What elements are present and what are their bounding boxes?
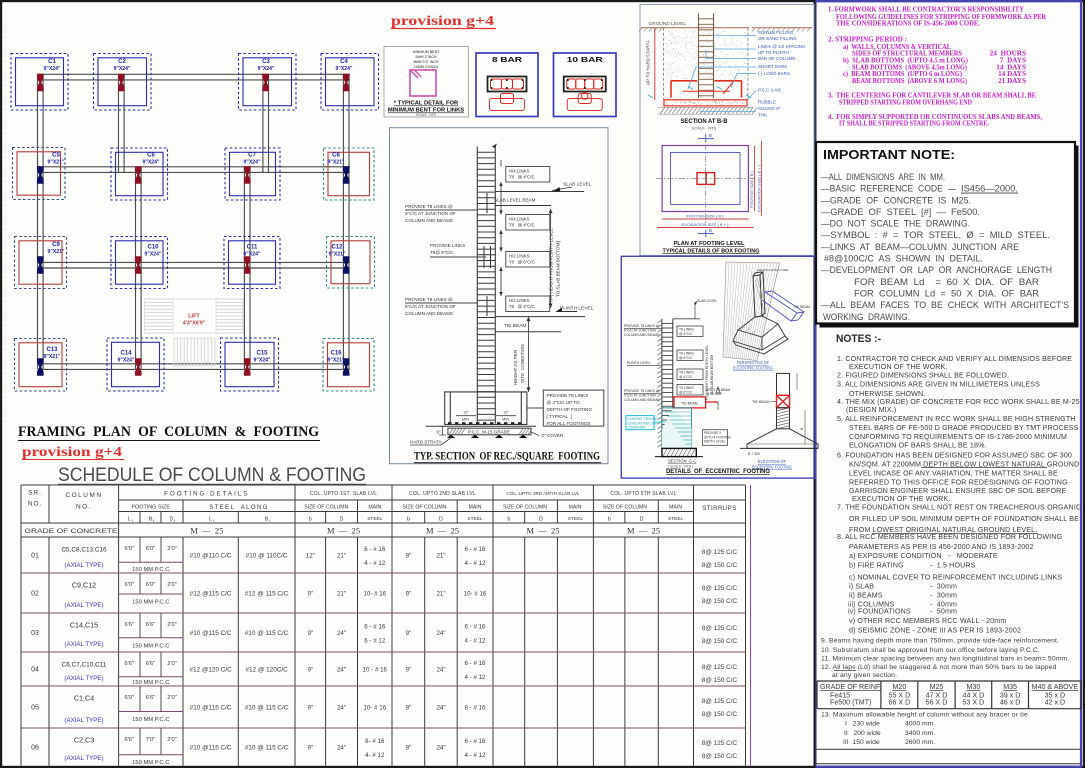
svg-text:FRAMING PLAN OF COLUMN & FOOTI: FRAMING PLAN OF COLUMN & FOOTING <box>18 424 319 440</box>
svg-text:DEPTH LEVEL: DEPTH LEVEL <box>704 440 726 444</box>
svg-text:66 X D: 66 X D <box>889 699 911 707</box>
svg-text:4'3"X6'9": 4'3"X6'9" <box>183 321 206 327</box>
svg-text:SIZE OF COLUMN: SIZE OF COLUMN <box>304 505 348 511</box>
svg-text:11. Minimum clear spacing betw: 11. Minimum clear spacing between any tw… <box>821 656 1069 663</box>
svg-text:9": 9" <box>307 591 313 598</box>
svg-text:ii) BEAMS: ii) BEAMS <box>849 592 883 600</box>
svg-text:M35: M35 <box>1003 683 1017 691</box>
svg-text:COLUMN: COLUMN <box>65 492 102 499</box>
svg-text:GARRISON ENGINEER SHALL ENSURE: GARRISON ENGINEER SHALL ENSURE SBC OF SO… <box>849 487 1066 495</box>
svg-text:THE CONSIDERATIONS OF IS-456-2: THE CONSIDERATIONS OF IS-456-2000 CODE. <box>836 20 980 28</box>
svg-text:5"C/C AT JUNCTION: 5"C/C AT JUNCTION <box>624 394 656 398</box>
svg-text:f: f <box>213 519 214 523</box>
svg-text:@ 4"C/C: @ 4"C/C <box>679 332 693 336</box>
svg-text:9": 9" <box>406 630 412 637</box>
svg-text:c) NOMINAL COVER TO REINFORCEM: c) NOMINAL COVER TO REINFORCEMENT INCLUD… <box>849 574 1062 582</box>
svg-text:6′0": 6′0" <box>146 582 156 588</box>
svg-text:FOR ALL FOOTINGS: FOR ALL FOOTINGS <box>547 421 591 426</box>
svg-text:2′0": 2′0" <box>167 695 177 701</box>
svg-text:COL. UPTO 3RD /4RTH SLAB LVL: COL. UPTO 3RD /4RTH SLAB LVL <box>506 491 580 496</box>
svg-text:—BASIC REFERENCE CODE —: —BASIC REFERENCE CODE — <box>821 184 961 194</box>
svg-text:T8 @ 6"C/C: T8 @ 6"C/C <box>509 260 535 265</box>
svg-text:STEEL BARS OF FE-500 D GRADE P: STEEL BARS OF FE-500 D GRADE PRODUCED BY… <box>849 424 1079 432</box>
svg-text:4 - # 12: 4 - # 12 <box>465 638 487 645</box>
svg-text:IS456—2000.: IS456—2000. <box>961 184 1018 194</box>
svg-text:SHORT BARS: SHORT BARS <box>758 64 787 69</box>
svg-text:PERSPECTIVE OF: PERSPECTIVE OF <box>737 360 769 365</box>
svg-text:M — 25: M — 25 <box>526 526 559 536</box>
svg-text:@ 4"C/C: @ 4"C/C <box>679 375 693 379</box>
svg-text:STIRRUPS: STIRRUPS <box>702 505 737 512</box>
svg-text:#12 @ 120C/C: #12 @ 120C/C <box>245 667 288 674</box>
svg-text:10 - # 16: 10 - # 16 <box>363 667 388 674</box>
svg-text:NOTES :-: NOTES :- <box>836 333 881 345</box>
svg-text:SCHEDULE OF COLUMN & FOOTING: SCHEDULE OF COLUMN & FOOTING <box>58 465 366 486</box>
svg-text:9": 9" <box>406 553 412 560</box>
svg-text:PARAMETERS AS PER IS 456-2000: PARAMETERS AS PER IS 456-2000 AND IS 189… <box>849 543 1034 551</box>
svg-text:BAR OF COLUMN: BAR OF COLUMN <box>758 56 796 61</box>
svg-text:SCALE : NTS: SCALE : NTS <box>416 113 436 117</box>
svg-text:C3: C3 <box>262 59 270 65</box>
svg-text:6"C/C AT JUNCTION OF: 6"C/C AT JUNCTION OF <box>405 211 456 216</box>
svg-text:b: b <box>309 517 312 523</box>
svg-text:8@ 150 C/C: 8@ 150 C/C <box>702 638 738 645</box>
svg-text:TYP. SECTION OF REC./SQUARE: TYP. SECTION OF REC./SQUARE FOOTING <box>414 449 600 463</box>
svg-text:THK.: THK. <box>758 113 768 118</box>
svg-text:FOOTING SIZE ( B ): FOOTING SIZE ( B ) <box>749 170 754 208</box>
svg-text:6′9": 6′9" <box>125 695 135 701</box>
svg-text:10MM 4"INCH): 10MM 4"INCH) <box>414 65 438 69</box>
svg-text:SECTION C-C: SECTION C-C <box>668 459 696 464</box>
svg-text:(DESIGN MIX.): (DESIGN MIX.) <box>846 406 896 414</box>
svg-text:—GRADE OF CONCRETE IS M25.: —GRADE OF CONCRETE IS M25. <box>821 195 971 205</box>
svg-text:C9: C9 <box>52 242 60 248</box>
svg-text:#10 @115 C/C: #10 @115 C/C <box>190 705 232 712</box>
svg-text:12": 12" <box>503 411 509 415</box>
svg-text:D: D <box>640 517 644 523</box>
svg-text:EXCAVATION SIZE ( B + ): EXCAVATION SIZE ( B + ) <box>757 164 762 212</box>
svg-text:150 MM P.C.C: 150 MM P.C.C <box>132 717 169 723</box>
svg-text:C5: C5 <box>52 153 60 159</box>
svg-text:PROVIDE T8 LINKS @: PROVIDE T8 LINKS @ <box>624 324 660 328</box>
svg-text:SLAB LEVEL: SLAB LEVEL <box>563 182 592 188</box>
svg-text:FOOTING DETAILS: FOOTING DETAILS <box>164 491 249 498</box>
svg-text:EXCAVATION SIZE ( B + ): EXCAVATION SIZE ( B + ) <box>681 222 729 227</box>
svg-text:MAIN: MAIN <box>669 505 682 511</box>
svg-text:iv) FOUNDATIONS: iv) FOUNDATIONS <box>848 608 911 616</box>
svg-text:TIE BEAM: TIE BEAM <box>681 402 698 406</box>
svg-text:STEEL: STEEL <box>568 516 584 522</box>
svg-text:9": 9" <box>406 705 412 712</box>
svg-text:L: L <box>209 517 212 523</box>
svg-text:B + 300: B + 300 <box>748 452 760 456</box>
svg-text:GRADE OF CONCRETE: GRADE OF CONCRETE <box>25 528 118 535</box>
svg-text:8@ 125 C/C: 8@ 125 C/C <box>702 549 738 556</box>
svg-text:f: f <box>269 519 270 523</box>
svg-text:C1: C1 <box>48 59 56 65</box>
svg-text:6 - # 16: 6 - # 16 <box>465 624 487 631</box>
svg-text:LINKS @ 1/2 SPACING: LINKS @ 1/2 SPACING <box>758 44 806 49</box>
svg-text:2600 mm.: 2600 mm. <box>905 739 935 746</box>
svg-text:—GRADE OF STEEL [#] — Fe5: —GRADE OF STEEL [#] — Fe500. <box>821 207 980 217</box>
svg-text:7′0": 7′0" <box>146 737 156 743</box>
svg-text:4 - # 12: 4 - # 12 <box>364 560 386 567</box>
svg-text:GRADE OF REINF.: GRADE OF REINF. <box>820 683 882 691</box>
svg-text:EXECUTION OF THE WORK.: EXECUTION OF THE WORK. <box>849 363 948 371</box>
svg-text:[ TYPICAL ]: [ TYPICAL ] <box>547 414 572 419</box>
svg-text:6. FOUNDATION HAS BEEN DESIGNE: 6. FOUNDATION HAS BEEN DESIGNED FOR ASSU… <box>837 452 1072 460</box>
svg-text:MAIN: MAIN <box>569 505 582 511</box>
svg-text:150 MM P.C.C: 150 MM P.C.C <box>132 567 169 573</box>
svg-text:CEILING STRUCTURE: CEILING STRUCTURE <box>757 268 788 272</box>
svg-text:f: f <box>153 519 154 523</box>
svg-text:C10: C10 <box>147 245 159 251</box>
svg-text:D: D <box>340 517 344 523</box>
svg-text:H/4 LINKS: H/4 LINKS <box>509 169 530 174</box>
svg-text:9"X24": 9"X24" <box>243 160 261 166</box>
svg-text:M20: M20 <box>892 683 906 691</box>
svg-text:#10 @115 C/C: #10 @115 C/C <box>190 630 232 637</box>
svg-text:21": 21" <box>337 591 346 598</box>
svg-text:H/4 LINKS: H/4 LINKS <box>509 217 530 222</box>
svg-text:24": 24" <box>436 744 445 751</box>
svg-text:SLAB LEVEL: SLAB LEVEL <box>697 299 717 303</box>
svg-text:9"X21": 9"X21" <box>327 160 345 166</box>
svg-text:LEVEL INCASE OF ANY VARIATION,: LEVEL INCASE OF ANY VARIATION, THE MATTE… <box>849 469 1058 477</box>
svg-text:9"X21": 9"X21" <box>328 252 346 258</box>
svg-text:C12: C12 <box>331 245 343 251</box>
svg-text:#10 @ 115 C/C: #10 @ 115 C/C <box>245 744 289 751</box>
svg-text:9"X24": 9"X24" <box>142 160 160 166</box>
svg-text:8@ 125 C/C: 8@ 125 C/C <box>702 625 738 632</box>
svg-text:6 - # 16: 6 - # 16 <box>364 546 386 553</box>
svg-text:C1,C4: C1,C4 <box>74 694 94 703</box>
svg-text:5MM 3"INCH: 5MM 3"INCH <box>415 55 436 59</box>
svg-text:24": 24" <box>436 667 445 674</box>
svg-text:PROVIDE T8 LINKS @: PROVIDE T8 LINKS @ <box>405 204 453 209</box>
svg-text:WORKING DRAWING.: WORKING DRAWING. <box>823 312 910 322</box>
svg-text:KN/SQM. AT 2200MM DEPTH BELOW: KN/SQM. AT 2200MM DEPTH BELOW LOWEST NAT… <box>849 460 1079 468</box>
svg-text:#10 @110 C/C: #10 @110 C/C <box>190 553 232 560</box>
svg-text:- 1.5 HOURS: - 1.5 HOURS <box>930 562 976 570</box>
svg-text:10- # 16: 10- # 16 <box>464 591 487 598</box>
svg-text:24": 24" <box>337 667 346 674</box>
svg-text:STEEL: STEEL <box>668 516 684 522</box>
svg-text:6′6": 6′6" <box>125 737 135 743</box>
svg-text:f: f <box>132 519 133 523</box>
svg-text:UP TO PLINTH: UP TO PLINTH <box>758 50 789 55</box>
svg-text:STRIPPED STARTING FROM OVERHAN: STRIPPED STARTING FROM OVERHANG END <box>839 98 972 106</box>
svg-text:MAIN: MAIN <box>368 505 381 511</box>
svg-text:M40 & ABOVE: M40 & ABOVE <box>1032 683 1079 691</box>
svg-text:a) EXPOSURE CONDITION - MO: a) EXPOSURE CONDITION - MODERATE <box>849 552 998 560</box>
svg-text:3. ALL DIMENSIONS ARE GIVEN IN: 3. ALL DIMENSIONS ARE GIVEN IN MILLIMETE… <box>837 381 1040 389</box>
svg-text:provision g+4: provision g+4 <box>22 444 122 459</box>
svg-text:SIZE OF COLUMN: SIZE OF COLUMN <box>503 505 547 511</box>
svg-text:—LINKS AT BEAM—COLUMN JUNCT: —LINKS AT BEAM—COLUMN JUNCTION ARE <box>821 242 1019 252</box>
svg-text:24": 24" <box>337 705 346 712</box>
svg-text:T8 LINKS: T8 LINKS <box>679 386 694 390</box>
svg-text:T8 @ 4"C/C: T8 @ 4"C/C <box>509 223 535 228</box>
svg-text:6 - # 16: 6 - # 16 <box>465 660 487 667</box>
svg-text:@ 6"C/C: @ 6"C/C <box>679 391 693 395</box>
svg-text:2′0": 2′0" <box>167 546 177 552</box>
svg-text:* TYPICAL DETAIL FOR: * TYPICAL DETAIL FOR <box>394 101 459 107</box>
svg-text:9": 9" <box>307 705 313 712</box>
svg-text:PLINTH LEVEL: PLINTH LEVEL <box>627 361 651 365</box>
svg-text:SIZE OF COLUMN: SIZE OF COLUMN <box>402 505 446 511</box>
svg-text:COLUMN AND BEAMS: COLUMN AND BEAMS <box>405 218 453 223</box>
svg-text:SLAB LEVEL BEAM: SLAB LEVEL BEAM <box>494 198 536 203</box>
svg-text:8. ALL RCC MEMBERS HAVE BEEN D: 8. ALL RCC MEMBERS HAVE BEEN DESIGNED FO… <box>837 533 1062 541</box>
svg-text:9"X24": 9"X24" <box>257 66 275 72</box>
svg-text:C7: C7 <box>248 153 256 159</box>
svg-text:LIFT: LIFT <box>188 314 200 320</box>
svg-text:b: b <box>507 517 510 523</box>
svg-text:M30: M30 <box>966 683 980 691</box>
svg-text:4. THE MIX (GRADE) OF CONCRETE: 4. THE MIX (GRADE) OF CONCRETE FOR RCC W… <box>837 398 1080 406</box>
svg-text:@ T8 GAP: @ T8 GAP <box>706 392 723 396</box>
svg-text:TIE BEAM: TIE BEAM <box>752 400 770 404</box>
svg-text:PROVIDE T8 LINKS @: PROVIDE T8 LINKS @ <box>624 389 660 393</box>
svg-text:RUBBLE: RUBBLE <box>758 100 776 105</box>
svg-text:H=[ HEIGHT FROM PLINTH LEVEL: H=[ HEIGHT FROM PLINTH LEVEL <box>549 228 554 302</box>
svg-text:4 - # 12: 4 - # 12 <box>465 674 487 681</box>
svg-text:C6: C6 <box>147 153 155 159</box>
svg-text:2′0": 2′0" <box>167 737 177 743</box>
svg-text:9"X24": 9"X24" <box>253 358 271 364</box>
svg-text:24": 24" <box>436 705 445 712</box>
svg-text:8MM 3.5" INCH: 8MM 3.5" INCH <box>413 60 438 64</box>
svg-text:C9,C12: C9,C12 <box>72 581 96 590</box>
svg-text:C8: C8 <box>332 153 340 159</box>
svg-text:150 MM P.C.C: 150 MM P.C.C <box>132 643 169 649</box>
svg-text:9": 9" <box>406 591 412 598</box>
svg-text:10- # 16: 10- # 16 <box>363 705 386 712</box>
svg-text:06: 06 <box>31 744 39 751</box>
svg-text:d) SEISMIC ZONE - ZONE III AS: d) SEISMIC ZONE - ZONE III AS PER IS 189… <box>849 627 1021 635</box>
svg-text:1. CONTRACTOR TO CHECK AND VER: 1. CONTRACTOR TO CHECK AND VERIFY ALL DI… <box>837 355 1072 363</box>
svg-text:42 x D: 42 x D <box>1045 699 1066 707</box>
svg-text:TYPICAL DETAILS OF BOX FOOTING: TYPICAL DETAILS OF BOX FOOTING <box>663 248 760 254</box>
svg-text:9"X21": 9"X21" <box>47 160 65 166</box>
svg-text:21 DAYS: 21 DAYS <box>998 77 1026 85</box>
svg-text:#10 @ 115 C/C: #10 @ 115 C/C <box>245 705 289 712</box>
svg-text:b: b <box>608 517 611 523</box>
svg-text:#8@100C/C AS SHOWN IN DETA: #8@100C/C AS SHOWN IN DETAIL. <box>824 254 983 264</box>
svg-text:6 - # 16: 6 - # 16 <box>364 624 386 631</box>
svg-text:4 - # 12: 4 - # 12 <box>465 752 487 759</box>
svg-text:150 MM P.C.C: 150 MM P.C.C <box>132 760 169 766</box>
svg-text:BEAM BOTTOMS (ABOVE 6 M LONG): BEAM BOTTOMS (ABOVE 6 M LONG) <box>852 77 968 85</box>
svg-text:PROVIDE T8 LINKS @: PROVIDE T8 LINKS @ <box>405 297 453 302</box>
svg-text:10. Substratum shall be approv: 10. Substratum shall be approved from ou… <box>821 647 1040 654</box>
svg-text:L: L <box>128 517 131 523</box>
svg-text:(AXIAL TYPE): (AXIAL TYPE) <box>64 641 103 648</box>
svg-text:C5,C8,C13,C16: C5,C8,C13,C16 <box>61 547 107 554</box>
svg-text:COL. UPTO 2ND SLAB LVL: COL. UPTO 2ND SLAB LVL <box>409 491 476 497</box>
svg-text:9"X21": 9"X21" <box>43 354 61 360</box>
svg-text:9": 9" <box>307 630 313 637</box>
svg-text:04: 04 <box>31 667 39 674</box>
svg-text:SECTION AT B-B: SECTION AT B-B <box>681 118 728 125</box>
svg-text:—DO NOT SCALE THE DRAWING.: —DO NOT SCALE THE DRAWING. <box>821 219 970 229</box>
svg-text:C2,C3: C2,C3 <box>74 736 94 745</box>
svg-text:6′6": 6′6" <box>125 661 135 667</box>
svg-text:8@ 125 C/C: 8@ 125 C/C <box>702 740 738 747</box>
svg-text:f: f <box>174 519 175 523</box>
svg-text:9"X24": 9"X24" <box>43 66 61 72</box>
svg-text:6 - # 12: 6 - # 12 <box>364 638 386 645</box>
svg-text:SOLING 9": SOLING 9" <box>758 106 781 111</box>
svg-text:9": 9" <box>307 667 313 674</box>
svg-text:D: D <box>170 517 174 523</box>
svg-text:M — 25: M — 25 <box>190 526 223 536</box>
svg-text:—ALL BEAM FACES TO BE CHE: —ALL BEAM FACES TO BE CHECK WITH ARCHITE… <box>821 300 1069 310</box>
svg-text:6′0": 6′0" <box>125 582 135 588</box>
svg-text:6"C/C AT JUNCTION: 6"C/C AT JUNCTION <box>624 329 656 333</box>
svg-text:I 230 wide: I 230 wide <box>845 721 880 728</box>
svg-text:T8 LINKS: T8 LINKS <box>679 371 694 375</box>
svg-text:C11: C11 <box>247 245 258 251</box>
svg-text:21": 21" <box>337 553 346 560</box>
svg-text:5"C/C AT JUNCTION OF: 5"C/C AT JUNCTION OF <box>405 304 456 309</box>
svg-text:#10 @ 115 C/C: #10 @ 115 C/C <box>245 630 289 637</box>
svg-text:v) OTHER RCC MEMBERS RCC WALL: v) OTHER RCC MEMBERS RCC WALL - 20mm <box>849 617 1006 625</box>
svg-text:SURLIM FILLING: SURLIM FILLING <box>758 30 794 35</box>
svg-text:13. Maximum allowable height o: 13. Maximum allowable height of column w… <box>821 711 1028 718</box>
svg-text:MAIN: MAIN <box>469 505 482 511</box>
svg-text:3400 mm.: 3400 mm. <box>905 730 935 737</box>
svg-text:9"X21": 9"X21" <box>327 358 345 364</box>
svg-text:#12 @115 C/C: #12 @115 C/C <box>190 591 232 598</box>
svg-text:provision g+4: provision g+4 <box>391 13 494 28</box>
svg-text:IMPORTANT NOTE:: IMPORTANT NOTE: <box>823 148 955 162</box>
svg-text:01: 01 <box>31 553 39 560</box>
svg-text:OR FILLED UP SOIL MINIMUM DEPT: OR FILLED UP SOIL MINIMUM DEPTH OF FOUND… <box>849 515 1079 523</box>
svg-text:T8 @ 4"C/C: T8 @ 4"C/C <box>509 304 535 309</box>
svg-text:8@ 150 C/C: 8@ 150 C/C <box>702 562 738 569</box>
svg-text:8@ 150 C/C: 8@ 150 C/C <box>702 753 738 760</box>
svg-text:10 BAR: 10 BAR <box>567 55 604 64</box>
svg-text:HEIGHT AS PER: HEIGHT AS PER <box>513 349 518 385</box>
svg-text:@ 6"C/C: @ 6"C/C <box>679 356 693 360</box>
svg-text:8@ 125 C/C: 8@ 125 C/C <box>702 698 738 705</box>
svg-text:UP TO HARD STARTA: UP TO HARD STARTA <box>646 40 651 85</box>
svg-text:24": 24" <box>337 744 346 751</box>
svg-text:2′0": 2′0" <box>167 582 177 588</box>
svg-text:P.C.C. M-15 GRADE: P.C.C. M-15 GRADE <box>468 430 510 435</box>
svg-text:8 - # 16: 8 - # 16 <box>465 705 487 712</box>
svg-text:TIE BEAM: TIE BEAM <box>504 323 526 329</box>
svg-text:24": 24" <box>436 630 445 637</box>
svg-text:12": 12" <box>463 411 469 415</box>
svg-text:T8 @ 4"C/C: T8 @ 4"C/C <box>509 175 535 180</box>
svg-text:C4: C4 <box>340 59 348 65</box>
svg-text:REFERRED TO THIS OFFICE FOR RE: REFERRED TO THIS OFFICE FOR REDESIGNING … <box>849 479 1068 487</box>
svg-text:EXECUTION OF THE WORK.: EXECUTION OF THE WORK. <box>852 495 951 503</box>
svg-text:OTHERWISE SHOWN.: OTHERWISE SHOWN. <box>849 390 925 398</box>
svg-text:2" COVER: 2" COVER <box>542 433 564 438</box>
svg-text:#12 @ 115 C/C: #12 @ 115 C/C <box>245 591 289 598</box>
svg-text:COL. UPTO 5TH SLAB LVL: COL. UPTO 5TH SLAB LVL <box>610 491 676 497</box>
svg-text:6 - # 16: 6 - # 16 <box>465 546 487 553</box>
svg-text:9"X24": 9"X24" <box>144 252 162 258</box>
svg-text:Fe500 (TMT): Fe500 (TMT) <box>830 699 871 707</box>
svg-text:M — 25: M — 25 <box>627 526 660 536</box>
svg-text:(AXIAL TYPE): (AXIAL TYPE) <box>64 717 103 724</box>
svg-text:#10 @ 110C/C: #10 @ 110C/C <box>246 553 288 560</box>
svg-text:7. THE FOUNDATION SHALL NOT RE: 7. THE FOUNDATION SHALL NOT REST ON TREA… <box>837 504 1081 512</box>
svg-text:@ 4"C/C UP TO: @ 4"C/C UP TO <box>547 400 581 405</box>
svg-text:MIN.: MIN. <box>502 418 510 422</box>
svg-text:9"X24": 9"X24" <box>243 252 261 258</box>
svg-text:C13: C13 <box>46 347 58 353</box>
svg-text:MIN.: MIN. <box>462 418 470 422</box>
svg-text:53 X D: 53 X D <box>963 699 985 707</box>
svg-text:NO.: NO. <box>76 504 92 511</box>
svg-text:SITE CONDITION: SITE CONDITION <box>520 344 525 383</box>
svg-text:ECCENTRIC FOOTING: ECCENTRIC FOOTING <box>733 366 773 371</box>
svg-text:8@ 150 C/C: 8@ 150 C/C <box>702 711 738 718</box>
svg-text:(AXIAL TYPE): (AXIAL TYPE) <box>64 755 103 762</box>
svg-text:03: 03 <box>31 630 39 637</box>
svg-text:9"X24": 9"X24" <box>113 66 131 72</box>
svg-text:III 150 wide: III 150 wide <box>843 739 880 746</box>
svg-text:D: D <box>539 517 543 523</box>
svg-text:2′0": 2′0" <box>167 622 177 628</box>
svg-text:8@ 150 C/C: 8@ 150 C/C <box>702 677 738 684</box>
svg-text:10- # 16: 10- # 16 <box>363 591 386 598</box>
svg-text:C15: C15 <box>256 351 268 357</box>
svg-text:6 - # 16: 6 - # 16 <box>465 738 487 745</box>
svg-text:8@ 150 C/C: 8@ 150 C/C <box>702 598 738 605</box>
svg-text:6": 6" <box>437 430 441 435</box>
svg-text:56 X D: 56 X D <box>926 699 948 707</box>
svg-text:B: B <box>709 228 712 233</box>
svg-text:—ALL DIMENSIONS ARE IN MM.: —ALL DIMENSIONS ARE IN MM. <box>821 172 945 182</box>
svg-text:6′0": 6′0" <box>146 546 156 552</box>
svg-text:9"X24": 9"X24" <box>335 66 353 72</box>
svg-text:6′6": 6′6" <box>125 622 135 628</box>
svg-text:9": 9" <box>406 667 412 674</box>
svg-text:SIZE OF COLUMN: SIZE OF COLUMN <box>603 505 647 511</box>
svg-text:4000 mm.: 4000 mm. <box>905 721 935 728</box>
svg-text:- 50mm: - 50mm <box>930 608 957 616</box>
svg-text:(-) LONG BARS: (-) LONG BARS <box>758 71 790 76</box>
svg-text:STEEL ALONG: STEEL ALONG <box>209 505 269 511</box>
svg-text:6′6": 6′6" <box>146 661 156 667</box>
svg-text:H/4 LINKS: H/4 LINKS <box>509 298 530 303</box>
svg-text:—SYMBOL : # = TOR STEEL,: —SYMBOL : # = TOR STEEL, Ø = MILD STEEL. <box>821 230 1050 240</box>
svg-text:6′0": 6′0" <box>125 546 135 552</box>
svg-text:9"X24": 9"X24" <box>117 358 135 364</box>
svg-text:24": 24" <box>337 630 346 637</box>
svg-text:II 200 wide: II 200 wide <box>844 730 881 737</box>
svg-text:#10 @115 C/C: #10 @115 C/C <box>190 744 232 751</box>
svg-text:C14,C15: C14,C15 <box>70 621 98 630</box>
svg-text:9. Beams having depth more tha: 9. Beams having depth more than 750mm, p… <box>821 637 1059 644</box>
svg-text:PROVIDE LINKS: PROVIDE LINKS <box>430 243 465 248</box>
svg-text:ELONGATION OF BARS SHALL BE 18: ELONGATION OF BARS SHALL BE 18%. <box>849 442 987 450</box>
svg-text:2′0": 2′0" <box>167 661 177 667</box>
svg-text:SCALE - NTS: SCALE - NTS <box>692 126 717 131</box>
svg-text:D: D <box>439 517 443 523</box>
svg-text:FOR BEAM Ld = 60 X DIA: FOR BEAM Ld = 60 X DIA. OF BAR <box>854 277 1039 287</box>
svg-text:21": 21" <box>436 553 445 560</box>
svg-text:b) FIRE RATING: b) FIRE RATING <box>849 562 904 570</box>
svg-text:COLUMN AND BEAMS: COLUMN AND BEAMS <box>624 333 660 337</box>
